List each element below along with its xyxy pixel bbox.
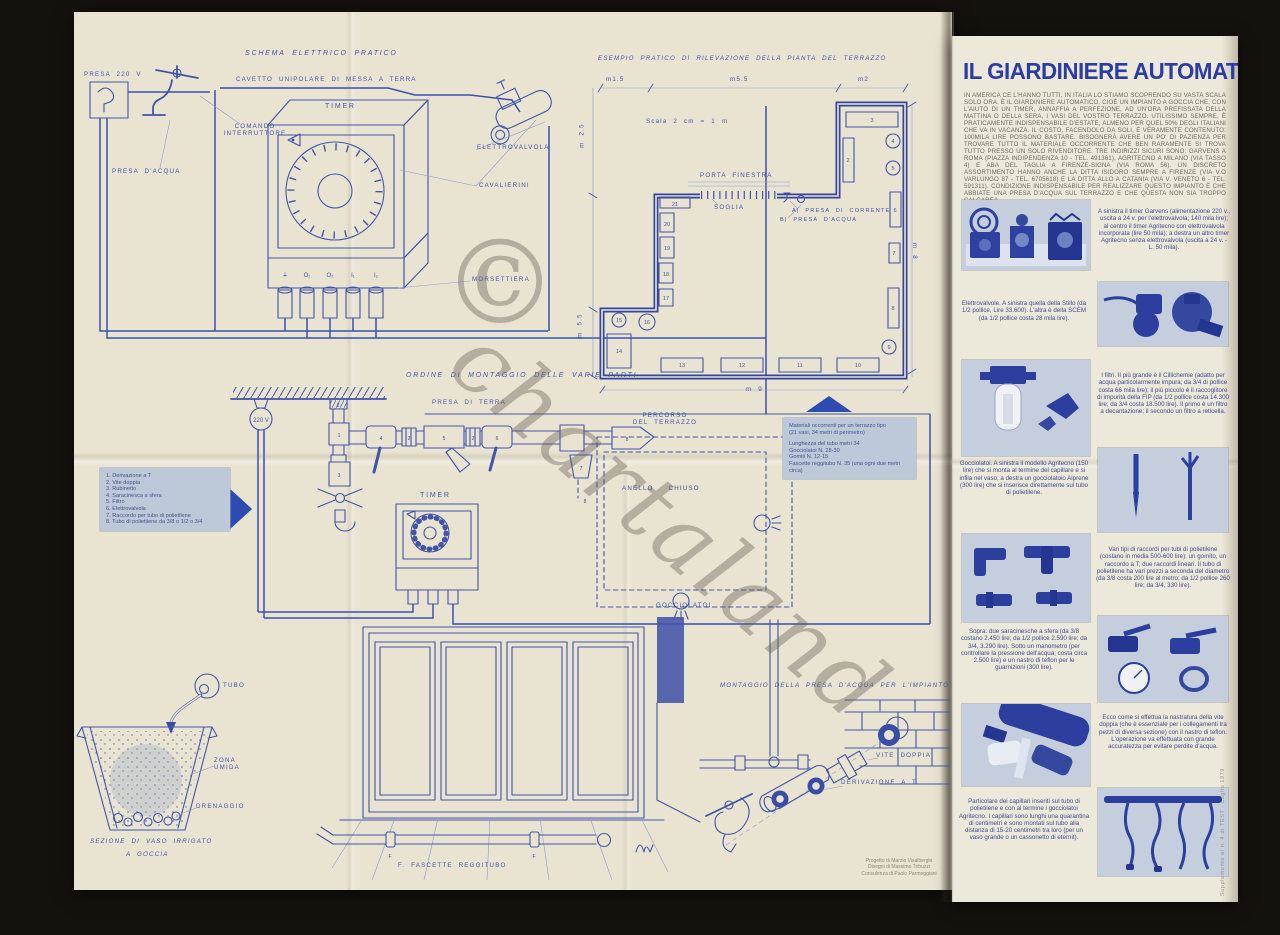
presa-corrente-label: A| PRESA DI CORRENTE — [792, 208, 890, 214]
vaso-caption-1: SEZIONE DI VASO IRRIGATO — [90, 838, 213, 845]
timer-middle-label: TIMER — [420, 492, 451, 499]
timer-label: TIMER — [325, 103, 356, 110]
photo-filters — [962, 360, 1090, 456]
legend-item: 3. Rubinetto — [106, 486, 224, 493]
presa-dacqua-label: PRESA D'ACQUA — [112, 168, 181, 175]
article-intro: IN AMERICA CE L'HANNO TUTTI, IN ITALIA L… — [964, 92, 1226, 204]
caption-fittings: Vari tipi di raccordi per tubi di poliet… — [1096, 546, 1230, 590]
tap-mounting-title: MONTAGGIO DELLA PRESA D'ACQUA PER L'IMPI… — [720, 682, 949, 689]
vite-doppia-label: VITE DOPPIA — [876, 752, 931, 759]
materials-item: Gocciolatoi N. 28-30 — [789, 448, 910, 455]
montaggio-title: ORDINE DI MONTAGGIO DELLE VARIE PARTI — [406, 372, 637, 379]
scala-label: Scala 2 cm = 1 m — [646, 118, 728, 125]
presa-220-label: PRESA 220 V — [84, 71, 142, 78]
materials-item: Lunghezza del tubo metri 34 — [789, 441, 910, 448]
zona-umida-label-1: ZONA — [214, 757, 236, 764]
pianta-title: ESEMPIO PRATICO DI RILEVAZIONE DELLA PIA… — [598, 55, 887, 62]
soglia-label: SOGLIA — [714, 204, 744, 211]
photo-valves — [1098, 282, 1228, 346]
porta-finestra-label: PORTA FINESTRA — [700, 172, 773, 179]
photo-drippers — [1098, 448, 1228, 532]
legend-item: 5. Filtro — [106, 499, 224, 506]
dim-top-1: m1.5 — [606, 76, 625, 83]
comando-label-1: COMANDO — [235, 123, 276, 130]
percorso-label-2: DEL TERRAZZO — [633, 419, 697, 426]
edge-note: Supplemento al n. 4 di TEST - Luglio 197… — [1220, 616, 1226, 896]
materials-box: Materiali occorrenti per un terrazzo tip… — [783, 418, 916, 479]
materials-item: Fascette reggitubo N. 35 (una ogni due m… — [789, 461, 910, 474]
photo-capillaries — [1098, 788, 1228, 876]
credits: Progetto di Marzio Visalberghi Disegni d… — [843, 858, 955, 877]
drenaggio-label: DRENAGGIO — [196, 803, 245, 810]
dim-bottom: m 9 — [746, 386, 763, 393]
caption-valves: Elettrovalvole. A sinistra quella della … — [958, 300, 1090, 322]
credit-line: Consulenza di Paolo Parmeggiani — [843, 871, 955, 877]
gocciolatoi-label: GOCCIOLATOI — [656, 602, 712, 609]
article-title: IL GIARDINIERE AUTOMATICO — [963, 58, 1238, 85]
parts-legend-box: 1. Derivazione a T 2. Vite doppia 3. Rub… — [100, 468, 230, 531]
dim-top-2: m5.5 — [730, 76, 749, 83]
caption-filters: I filtri. Il più grande è il Cillichemie… — [1096, 372, 1230, 416]
photo-fittings — [962, 534, 1090, 622]
photo-timers — [962, 200, 1090, 270]
dim-left-2: m 5.5 — [577, 313, 584, 337]
percorso-label-1: PERCORSO — [642, 412, 687, 419]
fascette-label: F. FASCETTE REGGITUBO — [398, 862, 507, 869]
cavalierini-label: CAVALIERINI — [479, 182, 530, 189]
caption-ballvalves: Sopra: due saracinesche a sfera (da 3/8 … — [958, 628, 1090, 672]
materials-heading-1: Materiali occorrenti per un terrazzo tip… — [789, 423, 910, 430]
dim-right: m 8 — [911, 243, 918, 260]
elettrovalvola-label: ELETTROVALVOLA — [477, 144, 550, 151]
presa-terra-label: PRESA DI TERRA — [432, 399, 506, 406]
morsettiera-label: MORSETTIERA — [472, 276, 530, 283]
legend-item: 2. Vite doppia — [106, 480, 224, 487]
zona-umida-label-2: UMIDA — [214, 764, 240, 771]
photo-ballvalves — [1098, 616, 1228, 702]
legend-item: 7. Raccordo per tubo di polietilene — [106, 513, 224, 520]
presa-acqua-b-label: B| PRESA D'ACQUA — [780, 217, 857, 223]
photo-taping — [962, 704, 1090, 786]
legend-item: 8. Tubo di polietilene da 3/8 o 1/2 o 3/… — [106, 519, 224, 526]
derivazione-label: DERIVAZIONE A T — [841, 779, 917, 786]
materials-heading-2: (21 vasi, 34 metri di perimetro) — [789, 430, 910, 437]
caption-capillaries: Particolare dei capillari inseriti sul t… — [958, 798, 1090, 842]
schema-title: SCHEMA ELETTRICO PRATICO — [245, 50, 398, 57]
caption-drippers: Gocciolatoi. A sinistra il modello Agrit… — [958, 460, 1090, 496]
caption-timers: A sinistra il timer Garvens (alimentazio… — [1098, 208, 1230, 252]
caption-taping: Ecco come si effettua la nastratura dell… — [1096, 714, 1230, 750]
article-column: IL GIARDINIERE AUTOMATICO IN AMERICA CE … — [952, 36, 1238, 902]
materials-item: Gomiti N. 12-15 — [789, 454, 910, 461]
legend-item: 4. Saracinesca a sfera — [106, 493, 224, 500]
dim-left-1: m 2.5 — [579, 123, 586, 147]
vaso-caption-2: A GOCCIA — [126, 851, 169, 858]
legend-item: 6. Elettrovalvola — [106, 506, 224, 513]
legend-item: 1. Derivazione a T — [106, 473, 224, 480]
dim-top-3: m2 — [858, 76, 869, 83]
cavetto-label: CAVETTO UNIPOLARE DI MESSA A TERRA — [236, 76, 417, 83]
poster-photo: { "colors":{"ink":"#4254a8","ink_dark":"… — [0, 0, 1280, 935]
anello-chiuso-label: ANELLO CHIUSO — [622, 485, 700, 492]
comando-label-2: INTERRUTTORE — [224, 130, 287, 137]
tubo-label: TUBO — [223, 682, 245, 689]
